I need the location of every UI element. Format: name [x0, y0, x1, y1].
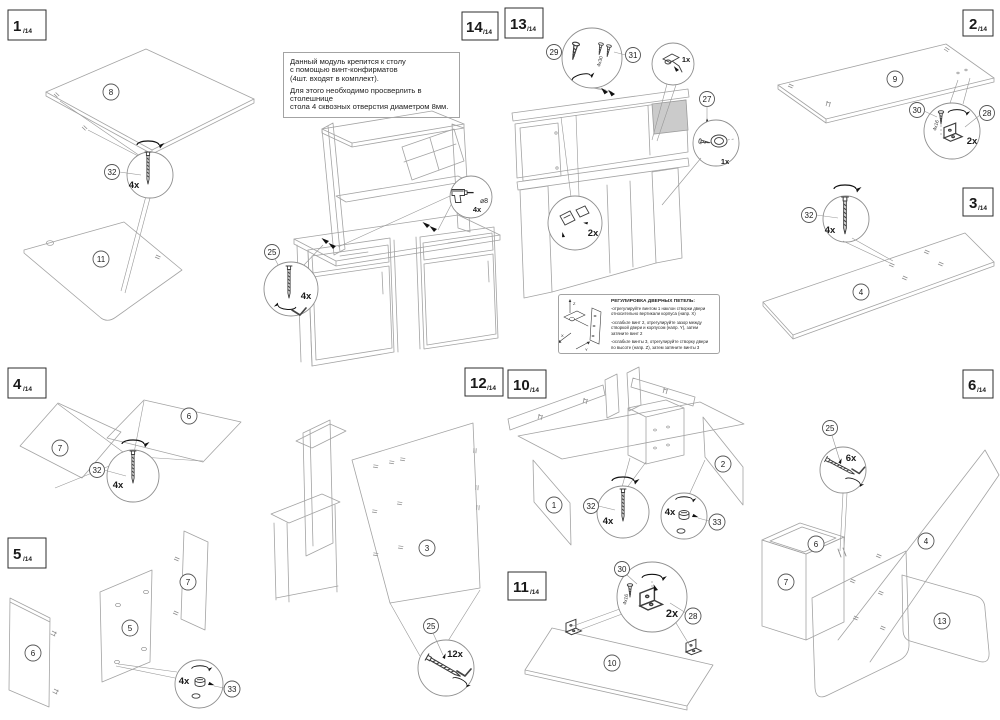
- part-callout: 2: [721, 460, 726, 469]
- rotate-arrow-icon: [137, 141, 165, 149]
- hardware-callout: 29: [550, 48, 559, 57]
- part-callout: 6: [187, 412, 192, 421]
- note-line: относительно вертикали корпуса (напр. X): [611, 311, 715, 317]
- step-denominator: /14: [527, 26, 536, 33]
- drill-point-arrow: [430, 226, 438, 232]
- drill-diameter-label: ⌀8: [480, 198, 488, 205]
- note-line: стола 4 сквозных отверстия диаметром 8мм…: [290, 103, 453, 111]
- step-4-panel: 4 /14 7 6 32 4x: [8, 368, 241, 502]
- hardware-callout: 32: [93, 466, 102, 475]
- step-denominator: /14: [977, 387, 986, 394]
- dowel-mark: [944, 47, 950, 52]
- quantity-label: 4x: [665, 507, 676, 518]
- step-denominator: /14: [23, 556, 32, 563]
- step-number: 6: [968, 377, 976, 394]
- step-number: 1: [13, 18, 21, 35]
- step-5-panel: 5 /14 6 5 7 4x 33: [8, 531, 240, 708]
- dowel-mark: [475, 504, 481, 511]
- step-10-panel: 10 /14 1 2 32 4x 4x 33: [508, 367, 744, 545]
- dowel-stud: [826, 101, 831, 107]
- quantity-label: 1x: [721, 157, 730, 166]
- step-1-panel: 1 /14 8 32 4x 11: [8, 10, 254, 320]
- hardware-callout: 31: [629, 51, 638, 60]
- dowel-mark: [173, 611, 179, 615]
- dowel-mark: [876, 554, 882, 558]
- quantity-label: 4x: [825, 225, 836, 236]
- step-denominator: /14: [487, 385, 496, 392]
- note-line: по высоте (напр. Z), затем затяните винт…: [611, 345, 715, 351]
- note-line: Для этого необходимо просверлить в столе…: [290, 87, 453, 104]
- quantity-label: 12x: [447, 649, 464, 660]
- part-callout: 9: [893, 75, 898, 84]
- quantity-label: 4x: [301, 291, 312, 302]
- hardware-callout: 33: [228, 685, 237, 694]
- dowel-mark: [850, 579, 856, 583]
- step-denominator: /14: [483, 29, 492, 36]
- part-callout: 4: [859, 288, 864, 297]
- dowel-mark: [399, 457, 405, 462]
- part-callout: 7: [186, 578, 191, 587]
- step-denominator: /14: [978, 205, 987, 212]
- step-denominator: /14: [978, 26, 987, 33]
- note-line: затяните винт 2: [611, 331, 715, 337]
- quantity-label: 4x: [603, 516, 614, 527]
- note-line: (4шт. входят в комплект).: [290, 75, 453, 83]
- dowel-mark: [788, 84, 794, 88]
- step-number: 14: [466, 19, 483, 36]
- dowel-mark: [397, 545, 403, 550]
- step-number: 4: [13, 376, 22, 393]
- dowel-mark: [938, 262, 944, 266]
- hardware-callout: 33: [713, 518, 722, 527]
- hardware-callout: 32: [108, 168, 117, 177]
- step-number: 2: [969, 16, 977, 33]
- part-callout: 7: [784, 578, 789, 587]
- part-callout: 1: [552, 501, 557, 510]
- rotate-arrow-icon: [612, 477, 640, 485]
- assembly-instruction-sheet: 1 /14 8 32 4x 11 14 /14 ⌀8 4x 25: [0, 0, 1000, 720]
- part-callout: 5: [128, 624, 133, 633]
- dowel-stud: [52, 689, 59, 694]
- hardware-callout: 28: [689, 612, 698, 621]
- step-number: 5: [13, 546, 21, 563]
- step-number: 10: [513, 377, 530, 394]
- quantity-label: 2x: [666, 608, 679, 620]
- hardware-callout: 25: [268, 248, 277, 257]
- note-line: -ослабьте винты 3, отрегулируйте створку…: [611, 339, 715, 345]
- part-callout: 4: [924, 537, 929, 546]
- instruction-drawing: 1 /14 8 32 4x 11 14 /14 ⌀8 4x 25: [0, 0, 1000, 720]
- dowel-mark: [474, 484, 480, 491]
- dowel-mark: [174, 557, 180, 561]
- part-callout: 13: [938, 617, 947, 626]
- part-callout: 11: [97, 255, 106, 264]
- step-number: 3: [969, 195, 977, 212]
- dowel-mark: [371, 509, 377, 514]
- dowel-mark: [396, 501, 402, 506]
- rotate-arrow-icon: [834, 185, 862, 193]
- step-denominator: /14: [23, 28, 32, 35]
- part-callout: 8: [109, 88, 114, 97]
- hardware-callout: 30: [618, 565, 627, 574]
- part-callout: 6: [31, 649, 36, 658]
- quantity-label: 2x: [967, 136, 978, 147]
- dowel-mark: [81, 125, 88, 131]
- part-callout: 3: [425, 544, 430, 553]
- step-number: 12: [470, 375, 487, 392]
- dowel-mark: [472, 447, 478, 454]
- dowel-stud: [663, 388, 668, 394]
- step-3-panel: 3 /14 32 4x 4: [763, 185, 994, 339]
- part-callout: 10: [608, 659, 617, 668]
- module-mounting-note: Данный модуль крепится к столу с помощью…: [283, 52, 460, 118]
- bracket-icon: [686, 639, 701, 654]
- step-11-panel: 11 /14 10 4x16 2x 30 28: [508, 562, 713, 711]
- dowel-mark: [878, 591, 884, 595]
- dowel-mark: [880, 626, 886, 630]
- quantity-label: 4x: [113, 480, 124, 491]
- hardware-callout: 32: [587, 502, 596, 511]
- dowel-mark: [372, 464, 378, 469]
- part-callout: 7: [58, 444, 63, 453]
- hardware-callout: 28: [983, 109, 992, 118]
- step-number: 11: [513, 579, 529, 596]
- drill-point-arrow: [329, 243, 337, 249]
- quantity-label: 2x: [588, 228, 599, 239]
- step-number: 13: [510, 16, 527, 33]
- dowel-mark: [889, 263, 895, 267]
- quantity-label: 4x: [129, 180, 140, 191]
- drill-point-arrow: [423, 222, 431, 228]
- dowel-mark: [924, 250, 930, 254]
- quantity-label: 1x: [682, 55, 691, 64]
- hardware-callout: 27: [703, 95, 712, 104]
- step-denominator: /14: [23, 386, 32, 393]
- dowel-mark: [155, 255, 161, 259]
- step-6-panel: 6 /14 25 6x 6 7 4 13: [762, 370, 999, 697]
- quantity-label: 4x: [179, 676, 190, 687]
- step-denominator: /14: [530, 387, 539, 394]
- step-12-panel: 12 /14 3 25 12x: [271, 368, 503, 696]
- hinge-note-title: РЕГУЛИРОВКА ДВЕРНЫХ ПЕТЕЛЬ:: [611, 299, 715, 305]
- step-2-panel: 2 /14 9 4x16 2x 30 28: [778, 10, 995, 159]
- bracket-icon: [566, 619, 581, 634]
- hardware-callout: 25: [826, 424, 835, 433]
- dowel-mark: [388, 460, 394, 465]
- quantity-label: 6x: [846, 453, 857, 464]
- pointer-arrow: [607, 90, 615, 97]
- dowel-stud: [50, 631, 57, 636]
- step-denominator: /14: [530, 589, 539, 596]
- hardware-callout: 30: [913, 106, 922, 115]
- dowel-mark: [902, 276, 908, 280]
- drill-quantity-label: 4x: [473, 205, 482, 214]
- hinge-adjustment-note: РЕГУЛИРОВКА ДВЕРНЫХ ПЕТЕЛЬ: -отрегулируй…: [558, 294, 720, 354]
- drill-point-arrow: [322, 238, 330, 244]
- hardware-callout: 25: [427, 622, 436, 631]
- part-callout: 6: [814, 540, 819, 549]
- hardware-callout: 32: [805, 211, 814, 220]
